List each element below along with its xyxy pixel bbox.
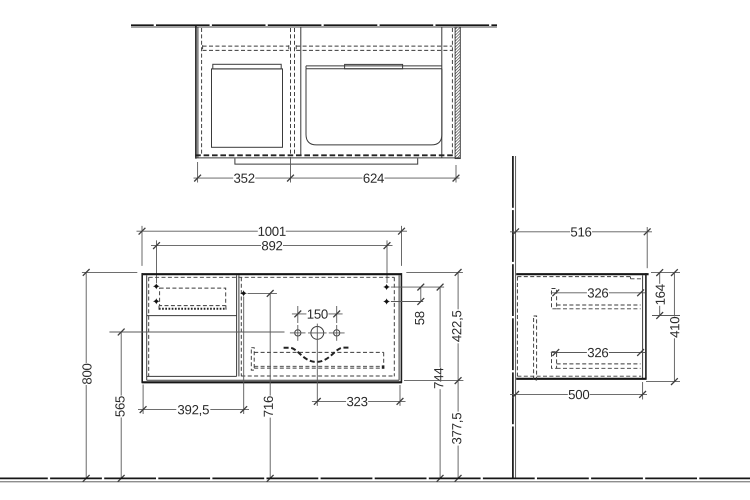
- svg-text:744: 744: [431, 368, 446, 389]
- svg-text:516: 516: [570, 224, 591, 239]
- svg-text:150: 150: [307, 307, 328, 322]
- svg-text:164: 164: [653, 284, 668, 305]
- svg-text:392,5: 392,5: [177, 402, 209, 417]
- svg-text:422,5: 422,5: [449, 310, 464, 342]
- svg-text:377,5: 377,5: [449, 413, 464, 445]
- svg-text:624: 624: [363, 171, 384, 186]
- svg-text:326: 326: [587, 285, 608, 300]
- svg-text:410: 410: [667, 317, 682, 338]
- svg-text:352: 352: [234, 171, 255, 186]
- svg-text:1001: 1001: [258, 224, 286, 239]
- svg-text:565: 565: [112, 396, 127, 417]
- svg-text:500: 500: [568, 387, 589, 402]
- svg-text:323: 323: [346, 394, 367, 409]
- svg-text:892: 892: [261, 238, 282, 253]
- svg-text:716: 716: [261, 396, 276, 417]
- svg-text:58: 58: [412, 311, 427, 325]
- svg-text:800: 800: [79, 363, 94, 384]
- svg-text:326: 326: [587, 345, 608, 360]
